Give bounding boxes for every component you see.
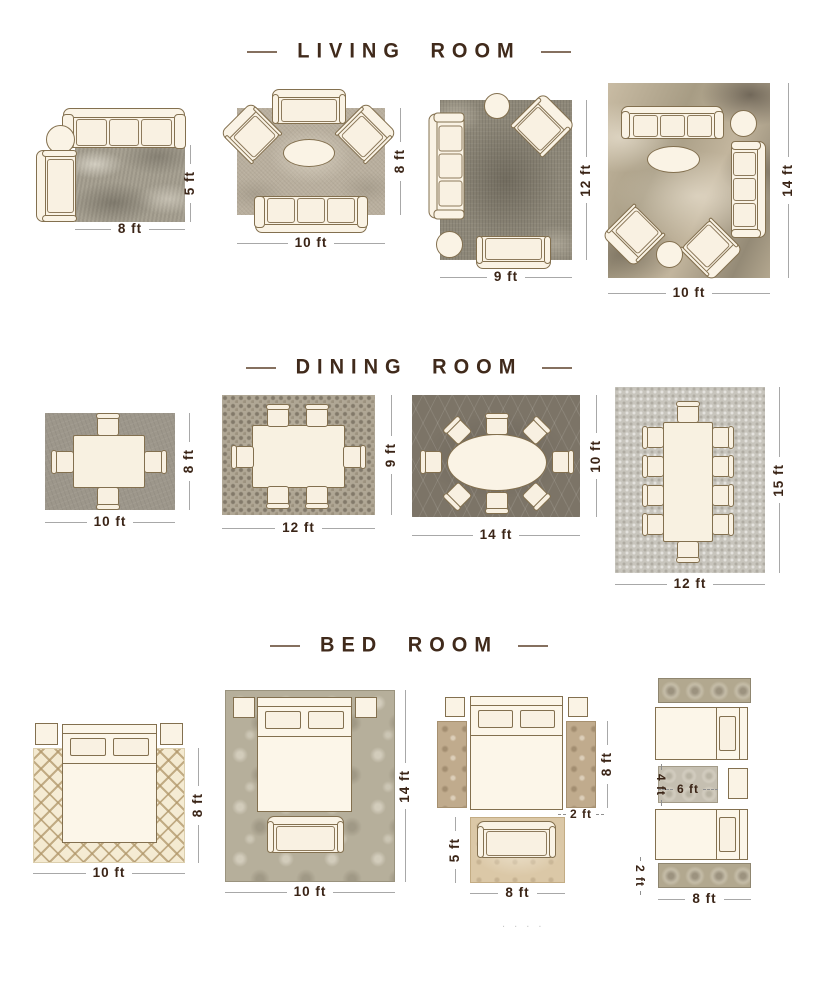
dimension-height-label: 12 ft <box>579 157 593 204</box>
dimension-height: 14 ft <box>397 690 413 882</box>
oval-coffee-table <box>647 146 700 173</box>
dining-chair <box>267 408 289 427</box>
nightstand <box>568 697 588 717</box>
sofa <box>63 108 185 148</box>
dimension-width: 8 ft <box>75 221 185 237</box>
dining-chair <box>486 492 508 510</box>
dimension-width: 10 ft <box>608 285 770 301</box>
dimension-middle-rug-width: 6 ft <box>658 781 718 797</box>
dimension-height-label: 15 ft <box>772 457 786 504</box>
dining-chair <box>97 417 119 436</box>
dimension-height-label: 9 ft <box>384 436 398 474</box>
dimension-height: 9 ft <box>383 395 399 515</box>
sofa <box>255 196 367 233</box>
dimension-height: 14 ft <box>780 83 796 278</box>
dining-chair <box>55 451 74 473</box>
title-dash <box>541 51 571 53</box>
dimension-height-label: 8 ft <box>191 786 205 824</box>
dining-chair <box>552 451 570 473</box>
dining-chair <box>97 487 119 506</box>
dimension-width-label: 12 ft <box>275 521 322 535</box>
dining-chair <box>646 427 664 448</box>
dimension-height: 8 ft <box>181 413 197 510</box>
dining-chair <box>677 405 699 423</box>
dining-chair <box>267 486 289 505</box>
dimension-runner-width-label: 2 ft <box>634 861 646 891</box>
section-title-text: LIVING ROOM <box>297 39 520 64</box>
living-rug-8x5 <box>75 145 185 222</box>
dimension-runner-height-label: 8 ft <box>600 745 614 783</box>
dimension-width: 12 ft <box>222 520 375 536</box>
dimension-height-label: 8 ft <box>182 442 196 480</box>
ottoman <box>436 231 463 258</box>
oval-dining-table <box>447 434 547 491</box>
dining-chair <box>144 451 163 473</box>
dimension-height: 8 ft <box>392 108 408 215</box>
dimension-height: 5 ft <box>182 145 198 222</box>
round-side-table <box>484 93 510 119</box>
dimension-width: 12 ft <box>615 576 765 592</box>
bed <box>470 696 563 810</box>
dimension-foot-rug-height: 5 ft <box>447 817 463 883</box>
sofa <box>621 106 723 139</box>
section-title-bed-room: BED ROOM <box>0 634 818 657</box>
dimension-width: 14 ft <box>412 527 580 543</box>
title-dash <box>246 367 276 369</box>
bench <box>477 821 556 858</box>
sofa <box>731 141 766 238</box>
section-title-text: DINING ROOM <box>296 355 523 380</box>
dimension-width-label: 8 ft <box>111 222 149 236</box>
dimension-width-label: 10 ft <box>87 515 134 529</box>
dining-chair <box>646 485 664 506</box>
dimension-height-label: 14 ft <box>781 157 795 204</box>
dining-chair <box>712 456 730 477</box>
dimension-height: 8 ft <box>190 748 206 863</box>
dimension-width-label: 10 ft <box>287 885 334 899</box>
dimension-runner-length-label: 8 ft <box>685 892 723 906</box>
bed <box>257 697 352 812</box>
dimension-runner-width: 2 ft <box>632 857 648 895</box>
dining-chair <box>712 514 730 535</box>
dimension-foot-rug-width: 8 ft <box>470 885 565 901</box>
dining-chair <box>646 456 664 477</box>
dining-chair <box>306 408 328 427</box>
title-dash <box>518 645 548 647</box>
dimension-width: 10 ft <box>45 514 175 530</box>
rug-size-guide-poster: LIVING ROOM DINING ROOM BED ROOM 8 ft 5 … <box>0 0 818 1000</box>
dimension-width-label: 10 ft <box>288 236 335 250</box>
runner-rug-top <box>658 678 751 703</box>
dimension-runner-length: 8 ft <box>658 891 751 907</box>
dining-table <box>663 422 713 542</box>
bench <box>267 816 344 853</box>
dining-chair <box>712 485 730 506</box>
runner-rug-bottom <box>658 863 751 888</box>
dimension-height: 15 ft <box>771 387 787 573</box>
title-dash <box>247 51 277 53</box>
nightstand <box>445 697 465 717</box>
dimension-width: 10 ft <box>225 884 395 900</box>
ottoman <box>656 241 683 268</box>
dining-chair <box>306 486 328 505</box>
dimension-height-label: 8 ft <box>393 142 407 180</box>
nightstand <box>233 697 255 718</box>
dimension-width: 10 ft <box>33 865 185 881</box>
section-title-living-room: LIVING ROOM <box>0 40 818 63</box>
dimension-width-label: 10 ft <box>666 286 713 300</box>
nightstand <box>728 768 748 799</box>
dining-chair <box>712 427 730 448</box>
nightstand <box>355 697 377 718</box>
dimension-middle-rug-width-label: 6 ft <box>673 783 703 795</box>
dining-chair <box>677 541 699 559</box>
dimension-width: 9 ft <box>440 269 572 285</box>
dimension-runner-height: 8 ft <box>599 721 615 808</box>
oval-coffee-table <box>283 139 335 167</box>
dining-chair <box>235 446 254 468</box>
section-title-text: BED ROOM <box>320 633 498 658</box>
dimension-height-label: 10 ft <box>589 433 603 480</box>
dining-chair <box>486 417 508 435</box>
nightstand <box>160 723 183 745</box>
watermark-dots: . . . . <box>502 918 544 930</box>
dining-chair <box>424 451 442 473</box>
dimension-width-label: 12 ft <box>667 577 714 591</box>
twin-bed <box>655 809 748 860</box>
loveseat <box>476 236 551 269</box>
dimension-foot-rug-width-label: 8 ft <box>498 886 536 900</box>
armchair <box>36 150 76 222</box>
title-dash <box>542 367 572 369</box>
dimension-height: 12 ft <box>578 100 594 260</box>
dining-table <box>252 425 345 488</box>
twin-bed <box>655 707 748 760</box>
dimension-height-label: 5 ft <box>183 164 197 202</box>
loveseat <box>272 89 346 124</box>
dimension-width: 10 ft <box>237 235 385 251</box>
dimension-height: 10 ft <box>588 395 604 517</box>
dining-chair <box>343 446 362 468</box>
sofa <box>428 113 464 218</box>
dimension-width-label: 10 ft <box>86 866 133 880</box>
dining-chair <box>646 514 664 535</box>
runner-rug-right <box>566 721 596 808</box>
round-side-table <box>730 110 757 137</box>
title-dash <box>270 645 300 647</box>
dining-table <box>73 435 145 488</box>
dimension-width-label: 14 ft <box>473 528 520 542</box>
runner-rug-left <box>437 721 467 808</box>
dimension-width-label: 9 ft <box>487 270 525 284</box>
bed <box>62 724 157 843</box>
dimension-height-label: 14 ft <box>398 763 412 810</box>
section-title-dining-room: DINING ROOM <box>0 356 818 379</box>
nightstand <box>35 723 58 745</box>
dimension-runner-width-label: 2 ft <box>566 808 596 820</box>
dimension-foot-rug-height-label: 5 ft <box>448 831 462 869</box>
